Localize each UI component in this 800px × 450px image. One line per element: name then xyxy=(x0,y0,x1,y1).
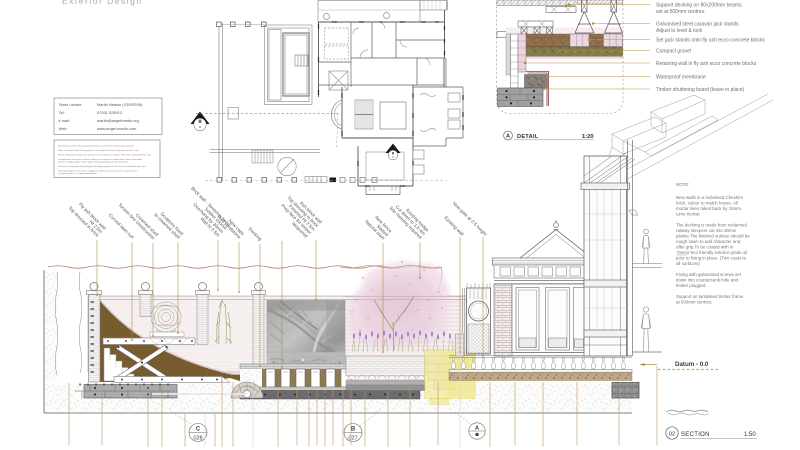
svg-text:All contractors must check all: All contractors must check all measureme… xyxy=(58,145,135,148)
svg-text:Tel:: Tel: xyxy=(59,110,65,115)
svg-text:When scaling from this drawing: When scaling from this drawing please ch… xyxy=(58,149,139,152)
svg-text:prior to fixing in place. (Two: prior to fixing in place. (Two coats to xyxy=(676,256,747,261)
svg-text:Web:: Web: xyxy=(59,126,68,131)
svg-text:Datum - 0.0: Datum - 0.0 xyxy=(675,361,709,368)
svg-text:NOTE:: NOTE: xyxy=(676,182,689,187)
svg-text:in specifications & an origina: in specifications & an original specific… xyxy=(58,172,98,175)
svg-text:Martin Nealon (GD9S2S9): Martin Nealon (GD9S2S9) xyxy=(97,102,143,107)
svg-text:Lime mortar.: Lime mortar. xyxy=(676,212,700,217)
svg-text:07931 525913: 07931 525913 xyxy=(97,110,122,115)
svg-text:Fixing with galvanised screws: Fixing with galvanised screws set xyxy=(676,272,742,277)
svg-text:planks.The finished surface sh: planks.The finished surface should be xyxy=(676,234,750,239)
svg-text:Adjust to level & lock: Adjust to level & lock xyxy=(656,28,703,34)
svg-text:SECTION: SECTION xyxy=(681,432,710,438)
svg-text:C: C xyxy=(196,427,201,433)
svg-text:mortar lines raked back by 15m: mortar lines raked back by 15mm. xyxy=(676,206,742,211)
svg-text:1:50: 1:50 xyxy=(744,432,756,438)
svg-text:offer grip.To be coated with i: offer grip.To be coated with in xyxy=(676,245,734,250)
svg-text:railway sleepers cut into 30mm: railway sleepers cut into 30mm xyxy=(676,228,737,233)
svg-text:Support on tantalised timber f: Support on tantalised timber frame xyxy=(676,294,744,299)
svg-text:Waterproof membrane: Waterproof membrane xyxy=(656,75,706,81)
svg-text:Retaining wall in fly ash ecco: Retaining wall in fly ash ecco concrete … xyxy=(656,61,757,67)
svg-text:02: 02 xyxy=(669,431,675,437)
svg-text:timber plugged.: timber plugged. xyxy=(676,283,706,288)
svg-text:e mail:: e mail: xyxy=(59,118,70,123)
svg-text:Exterior Design: Exterior Design xyxy=(62,0,143,6)
svg-text:B: B xyxy=(351,427,356,433)
svg-text:down into countersunk hole and: down into countersunk hole and xyxy=(676,278,739,283)
svg-text:Set jack stands onto fly ash e: Set jack stands onto fly ash ecco concre… xyxy=(656,38,765,44)
svg-text:The decking is made from recla: The decking is made from reclaimed xyxy=(676,223,747,228)
svg-text:1:20: 1:20 xyxy=(582,134,594,140)
svg-text:set at 500mm centres.: set at 500mm centres. xyxy=(656,9,705,15)
svg-text:A: A xyxy=(506,134,510,140)
svg-text:www.angel-martin.com: www.angel-martin.com xyxy=(97,126,136,131)
svg-text:DETAIL: DETAIL xyxy=(517,134,539,140)
svg-text:Team Leader:: Team Leader: xyxy=(59,102,83,107)
svg-text:"Osmo"eco friendly exterior gr: "Osmo"eco friendly exterior grade oil xyxy=(676,250,747,255)
svg-text:Before embarking on any work c: Before embarking on any work connected t… xyxy=(58,154,151,157)
svg-text:courses of relationships remov: courses of relationships remove right to… xyxy=(58,161,128,164)
svg-text:Support decking on 80x200mm be: Support decking on 80x200mm beams xyxy=(656,3,742,9)
svg-text:at 500mm centres.: at 500mm centres. xyxy=(676,300,712,305)
svg-text:rough sawn to add character an: rough sawn to add character and xyxy=(676,239,741,244)
svg-text:New walls in a reclaimed Chesh: New walls in a reclaimed Cheshire xyxy=(676,195,744,200)
svg-text:This plan is composed only, pl: This plan is composed only, planning all… xyxy=(58,165,146,168)
svg-text:brick, colour to match house.: brick, colour to match house. All xyxy=(676,201,738,206)
svg-text:martin@angelmartin.org: martin@angelmartin.org xyxy=(97,118,139,123)
svg-text:Timber shuttering board (leave: Timber shuttering board (leave in place) xyxy=(656,87,745,93)
svg-text:027: 027 xyxy=(348,436,357,442)
svg-text:Compact gravel: Compact gravel xyxy=(656,49,691,55)
svg-text:all surfaces): all surfaces) xyxy=(676,261,700,266)
svg-text:028: 028 xyxy=(193,436,202,442)
svg-text:Galvanised steel caravan jack: Galvanised steel caravan jack stands xyxy=(656,22,739,28)
